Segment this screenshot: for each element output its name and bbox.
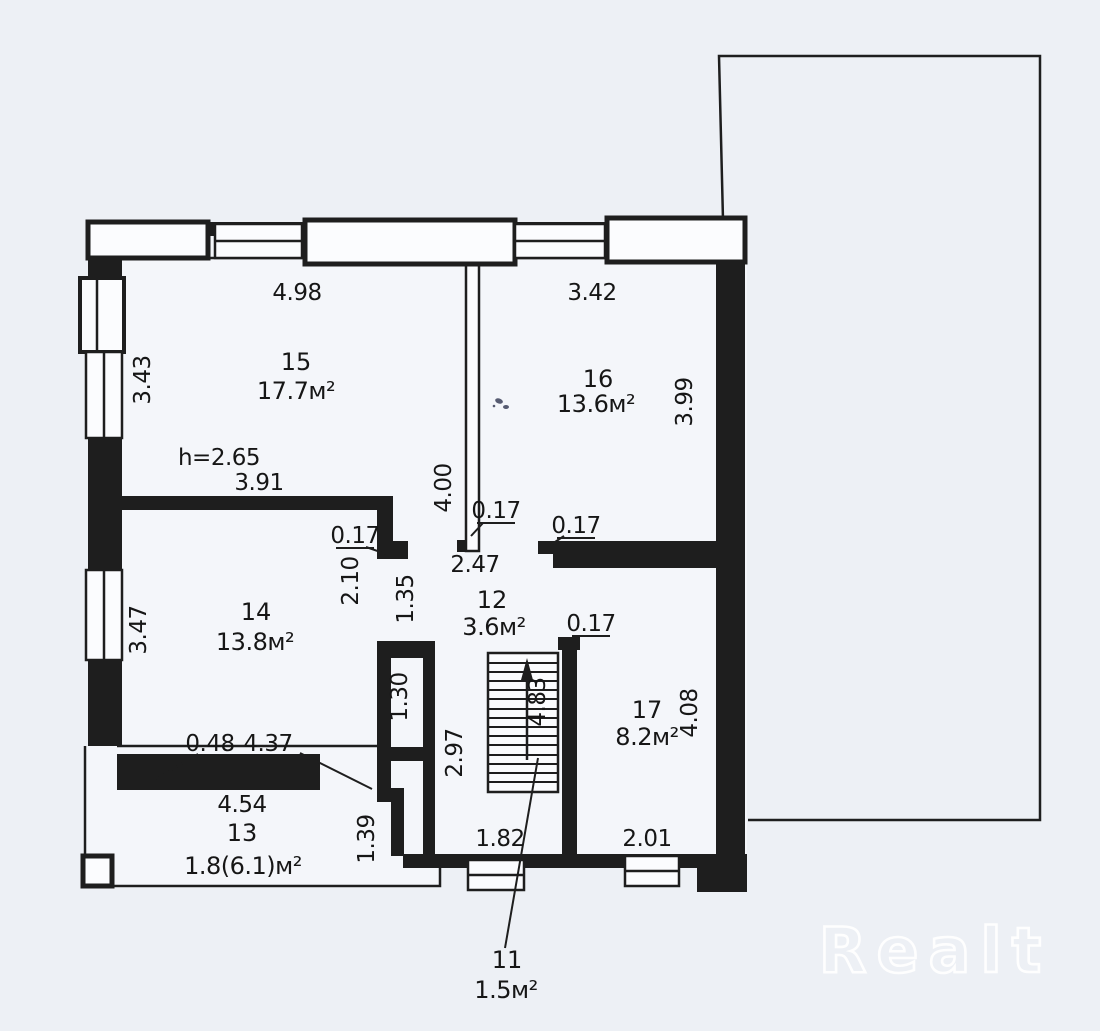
dim-2-10: 2.10 <box>338 556 364 605</box>
room-15-area: 17.7м² <box>257 377 335 405</box>
wall-room16-jamb <box>538 541 553 554</box>
dim-0-48: 0.48 <box>185 731 234 757</box>
wall-bottom-band <box>403 854 747 868</box>
wall-room16-room17 <box>553 541 745 568</box>
dim-room15-lower-width: 3.91 <box>234 470 283 496</box>
window-top-bay <box>305 220 515 264</box>
dim-center-partition: 4.00 <box>431 463 457 512</box>
dim-stair-hall-width: 1.82 <box>475 826 524 852</box>
room-12-number: 12 <box>477 586 508 614</box>
dim-porch-bay-depth: 1.39 <box>354 814 380 863</box>
dim-0-17-b: 0.17 <box>471 498 520 524</box>
room-16-area: 13.6м² <box>557 390 635 418</box>
dim-left-lower-height: 3.47 <box>126 605 152 654</box>
dim-room17-height: 4.08 <box>677 688 703 737</box>
corner-block-ne <box>607 218 745 262</box>
room-11-area: 1.5м² <box>474 976 537 1004</box>
corner-block-nw <box>88 222 208 258</box>
realt-watermark: Realt <box>819 914 1052 987</box>
floor-plan-canvas: 4.98 3.42 3.43 3.47 4.00 3.99 h=2.65 3.9… <box>0 0 1100 1031</box>
porch-wall-bar <box>117 754 320 790</box>
entry-wall-lower <box>391 802 404 856</box>
room-14-number: 14 <box>241 598 272 626</box>
wall-door-jamb <box>393 541 408 559</box>
dim-closet-height: 1.30 <box>387 672 413 721</box>
room-12-area: 3.6м² <box>462 613 525 641</box>
dim-0-17-d: 0.17 <box>566 611 615 637</box>
dim-1-35: 1.35 <box>393 574 419 623</box>
wall-room15-room14 <box>122 496 393 510</box>
room-17-number: 17 <box>632 696 663 724</box>
stair-wall-cap <box>558 637 580 650</box>
stair-wall-right <box>562 637 577 856</box>
dim-room17-width: 2.01 <box>622 826 671 852</box>
ceiling-height-note: h=2.65 <box>178 445 260 471</box>
dim-right-upper-height: 3.99 <box>672 377 698 426</box>
dim-left-upper-height: 3.43 <box>130 355 156 404</box>
dim-top-right-width: 3.42 <box>567 280 616 306</box>
room-14-area: 13.8м² <box>216 628 294 656</box>
dim-top-left-width: 4.98 <box>272 280 321 306</box>
dim-0-17-c: 0.17 <box>551 513 600 539</box>
room-17-area: 8.2м² <box>615 723 678 751</box>
dim-room14-width: 4.37 <box>243 731 292 757</box>
wall-corner-se <box>697 854 747 892</box>
room-13-number: 13 <box>227 819 258 847</box>
dim-0-17-a: 0.17 <box>330 523 379 549</box>
dim-stair-run: 4.83 <box>525 677 551 726</box>
porch-pillar <box>83 856 112 886</box>
dim-hall-top-width: 2.47 <box>450 552 499 578</box>
dim-porch-width: 4.54 <box>217 792 266 818</box>
room-16-number: 16 <box>583 365 614 393</box>
room-15-number: 15 <box>281 348 312 376</box>
room-13-area: 1.8(6.1)м² <box>184 852 302 880</box>
hall-wall-left <box>423 641 435 856</box>
room-11-number: 11 <box>492 946 523 974</box>
dim-stair-hall-height: 2.97 <box>442 728 468 777</box>
entry-wall-step <box>377 788 404 802</box>
window-left-bay <box>80 278 124 352</box>
